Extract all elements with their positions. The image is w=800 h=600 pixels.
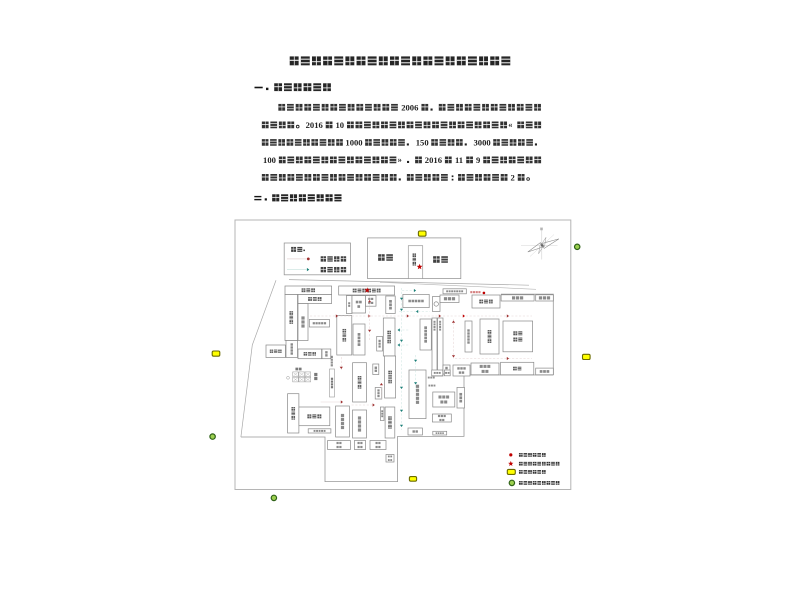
svg-text:2016: 2016 xyxy=(306,120,324,130)
svg-text:9: 9 xyxy=(476,155,480,165)
svg-text:»: » xyxy=(398,156,402,165)
svg-text:11: 11 xyxy=(455,155,463,165)
svg-text:2006: 2006 xyxy=(401,102,419,112)
svg-text:1000: 1000 xyxy=(345,137,362,147)
svg-text:«: « xyxy=(508,121,512,130)
svg-text:10: 10 xyxy=(336,120,345,130)
svg-text:150: 150 xyxy=(416,137,429,147)
svg-text:2: 2 xyxy=(511,172,515,182)
svg-text:3000: 3000 xyxy=(474,137,491,147)
svg-text:100: 100 xyxy=(263,155,276,165)
svg-text:2016: 2016 xyxy=(425,155,443,165)
